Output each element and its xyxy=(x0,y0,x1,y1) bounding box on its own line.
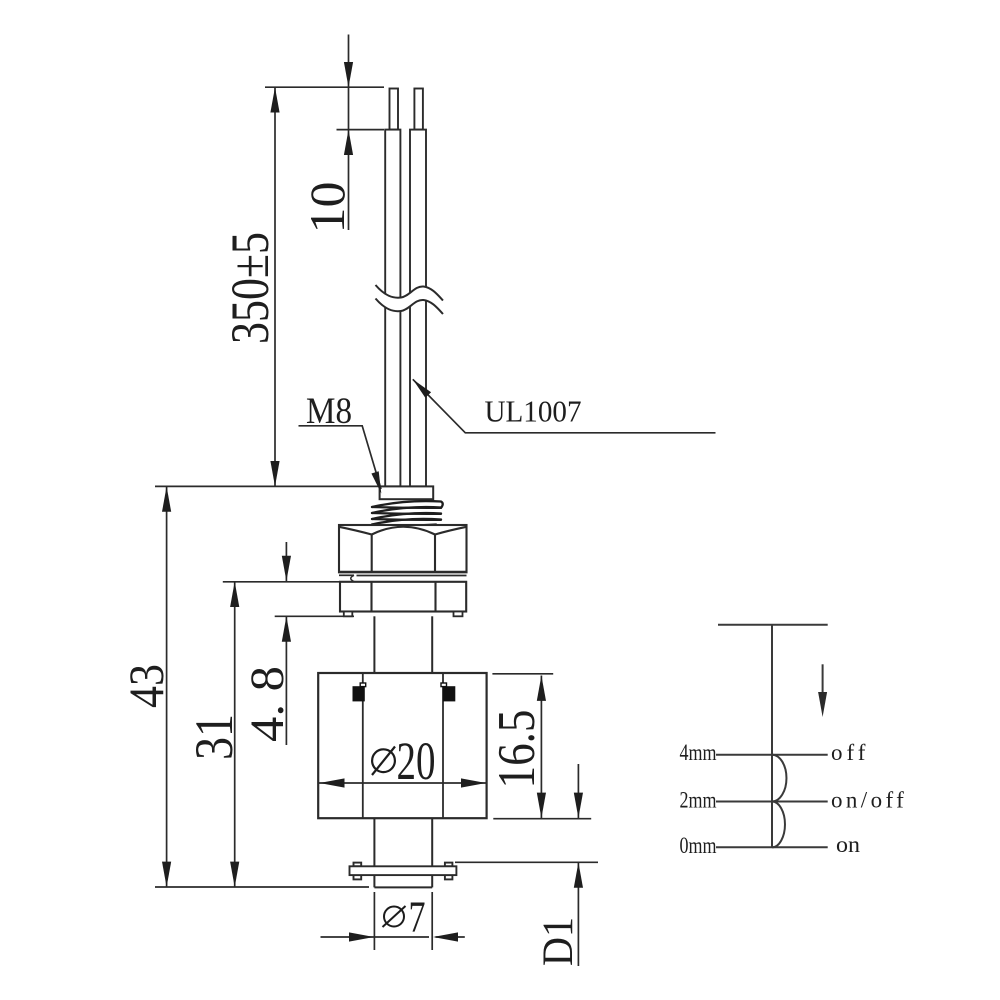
svg-text:10: 10 xyxy=(299,182,355,234)
svg-text:M8: M8 xyxy=(306,391,352,432)
svg-text:on: on xyxy=(836,832,861,857)
svg-text:31: 31 xyxy=(184,714,244,760)
svg-text:D1: D1 xyxy=(535,917,582,966)
svg-text:UL1007: UL1007 xyxy=(485,393,582,428)
svg-text:4. 8: 4. 8 xyxy=(241,666,294,742)
svg-text:4mm: 4mm xyxy=(680,740,717,765)
svg-text:43: 43 xyxy=(118,664,174,708)
svg-text:20: 20 xyxy=(397,731,436,791)
svg-text:16.5: 16.5 xyxy=(488,710,546,789)
svg-text:7: 7 xyxy=(409,893,426,942)
svg-text:on/off: on/off xyxy=(831,788,907,813)
svg-text:2mm: 2mm xyxy=(680,788,717,813)
svg-text:off: off xyxy=(831,740,869,765)
svg-text:0mm: 0mm xyxy=(680,833,717,858)
svg-text:350±5: 350±5 xyxy=(220,232,280,344)
